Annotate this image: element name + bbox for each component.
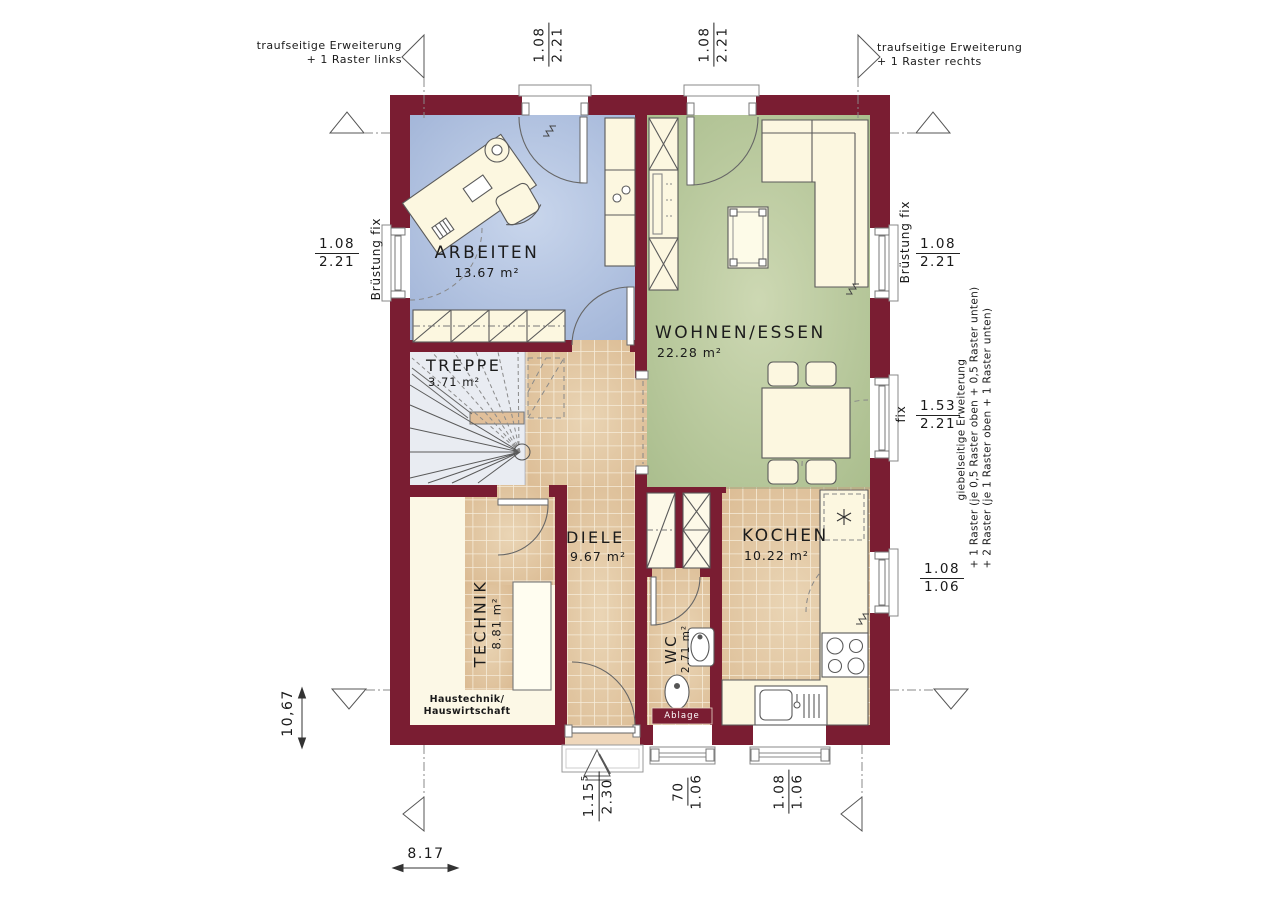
- dim-window-right-upper-w: 1.08: [916, 237, 960, 254]
- room-wc-area: 2.71 m²: [680, 619, 692, 679]
- stove: [822, 633, 868, 677]
- dim-window-kitchen-w: 1.08: [772, 770, 789, 814]
- room-kochen-name: KOCHEN: [742, 526, 829, 546]
- dim-door-top-left-w: 1.08: [532, 23, 549, 67]
- room-label-wohnen: WOHNEN/ESSEN 22.28 m²: [655, 323, 826, 360]
- dim-window-wc: 701.06: [671, 769, 704, 815]
- room-arbeiten-area: 13.67 m²: [407, 265, 567, 280]
- room-diele-name: DIELE: [566, 528, 626, 547]
- window-right-upper: [870, 225, 898, 301]
- stair-landing: [470, 412, 524, 424]
- annotation-top-right-line2: + 1 Raster rechts: [877, 55, 1047, 69]
- dim-window-right-mid-h: 2.21: [920, 416, 956, 432]
- dim-overall-width: 8.17: [394, 846, 458, 862]
- dim-overall-depth: 10,67: [280, 686, 296, 740]
- kitchen-sink: [755, 686, 827, 725]
- dim-entry-door-h: 2.30: [599, 778, 615, 814]
- room-wohnen-name: WOHNEN/ESSEN: [655, 323, 826, 343]
- axis-triangle-top-left: [330, 112, 392, 133]
- label-bruestung-right: Brüstung fix: [898, 199, 912, 285]
- axis-triangle-bottom-left: [332, 689, 390, 709]
- dim-door-top-right-h: 2.21: [715, 27, 731, 63]
- room-label-arbeiten: ARBEITEN 13.67 m²: [407, 243, 567, 280]
- arbeiten-sideboard: [413, 310, 565, 342]
- dim-window-right-lower-w: 1.08: [920, 562, 964, 579]
- axis-triangle-top-right: [890, 112, 950, 133]
- label-ablage: Ablage: [655, 711, 709, 721]
- dim-window-kitchen-h: 1.06: [790, 774, 806, 810]
- annotation-top-left: traufseitige Erweiterung + 1 Raster link…: [252, 39, 402, 66]
- arbeiten-cabinet: [605, 118, 635, 266]
- room-treppe-name: TREPPE: [426, 356, 501, 375]
- dim-window-right-lower: 1.081.06: [913, 562, 971, 595]
- room-wohnen-area: 22.28 m²: [655, 345, 826, 360]
- dim-window-wc-h: 1.06: [689, 774, 705, 810]
- dim-window-right-mid-w: 1.53: [916, 399, 960, 416]
- window-kitchen: [750, 725, 830, 764]
- dim-door-top-left-h: 2.21: [550, 27, 566, 63]
- floorplan-page: traufseitige Erweiterung + 1 Raster link…: [0, 0, 1280, 905]
- axis-triangle-south-left: [403, 745, 424, 831]
- annotation-top-left-line1: traufseitige Erweiterung: [252, 39, 402, 53]
- room-wc-name: WC: [662, 619, 680, 679]
- note-technik-line2: Hauswirtschaft: [407, 706, 527, 718]
- dim-door-top-left: 1.082.21: [532, 20, 565, 70]
- wc-toilet: [665, 675, 689, 709]
- dim-window-wc-w: 70: [671, 778, 688, 806]
- note-technik: Haustechnik/ Hauswirtschaft: [407, 694, 527, 717]
- technik-counter: [513, 582, 551, 690]
- dim-entry-door-w-sup: 5: [581, 775, 591, 781]
- room-technik-area: 8.81 m²: [490, 576, 504, 672]
- dim-window-left-h: 2.21: [319, 254, 355, 270]
- axis-triangle-bottom-right: [890, 689, 968, 709]
- room-label-diele: DIELE 9.67 m²: [566, 528, 626, 564]
- floorplan-drawing: [0, 0, 1280, 905]
- room-treppe-area: 3.71 m²: [426, 375, 501, 389]
- dim-window-kitchen: 1.081.06: [772, 767, 805, 817]
- dim-window-left: 1.082.21: [308, 237, 366, 270]
- room-technik-name: TECHNIK: [471, 576, 490, 672]
- label-bruestung-left: Brüstung fix: [369, 216, 383, 302]
- room-label-kochen: KOCHEN 10.22 m²: [742, 526, 829, 563]
- axis-triangle-south-right: [841, 745, 862, 831]
- dim-window-left-w: 1.08: [315, 237, 359, 254]
- note-technik-line1: Haustechnik/: [407, 694, 527, 706]
- wall-shelf: [649, 118, 678, 290]
- annotation-top-right: traufseitige Erweiterung + 1 Raster rech…: [877, 41, 1047, 68]
- room-diele-area: 9.67 m²: [566, 549, 626, 564]
- dim-entry-door-w: 1.15: [581, 781, 597, 817]
- dim-window-right-upper-h: 2.21: [920, 254, 956, 270]
- room-label-wc: WC 2.71 m²: [662, 619, 692, 679]
- annotation-right-gable-line2: + 1 Raster (je 0,5 Raster oben + 0,5 Ras…: [969, 279, 982, 569]
- room-label-treppe: TREPPE 3.71 m²: [426, 356, 501, 389]
- annotation-top-right-line1: traufseitige Erweiterung: [877, 41, 1047, 55]
- dim-door-top-right: 1.082.21: [697, 20, 730, 70]
- annotation-right-gable-line3: + 2 Raster (je 1 Raster oben + 1 Raster …: [982, 279, 995, 569]
- dim-window-right-mid: 1.532.21: [909, 399, 967, 432]
- window-wc: [650, 725, 715, 764]
- room-arbeiten-name: ARBEITEN: [407, 243, 567, 263]
- annotation-top-left-line2: + 1 Raster links: [252, 53, 402, 67]
- room-label-technik: TECHNIK 8.81 m²: [471, 576, 504, 672]
- dim-window-right-upper: 1.082.21: [909, 237, 967, 270]
- dim-entry-door: 1.1552.30: [581, 769, 616, 823]
- coffee-table: [728, 207, 768, 268]
- dim-window-right-lower-h: 1.06: [924, 579, 960, 595]
- dim-door-top-right-w: 1.08: [697, 23, 714, 67]
- room-kochen-area: 10.22 m²: [742, 548, 829, 563]
- label-fix-right: fix: [894, 399, 908, 429]
